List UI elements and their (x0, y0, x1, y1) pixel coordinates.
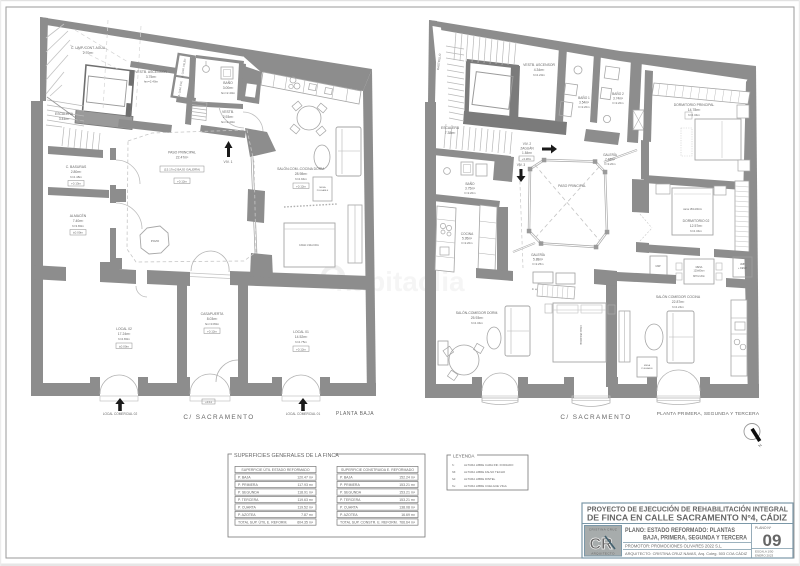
svg-text:h=2.34m: h=2.34m (471, 321, 483, 325)
svg-text:12.57m²: 12.57m² (690, 224, 703, 228)
svg-text:h=2.24m: h=2.24m (672, 305, 684, 309)
svg-text:(15.17m2 BAJO GALERÍA): (15.17m2 BAJO GALERÍA) (164, 168, 200, 172)
svg-text:153.21 m²: 153.21 m² (399, 498, 416, 502)
svg-text:5.88m²: 5.88m² (533, 258, 543, 262)
svg-text:+0.12m: +0.12m (177, 180, 188, 184)
svg-text:h=2.20m: h=2.20m (613, 101, 625, 105)
svg-text:22.47m²: 22.47m² (176, 156, 189, 160)
svg-text:VIV. 1: VIV. 1 (224, 160, 233, 164)
svg-text:BAÑO 1: BAÑO 1 (578, 95, 590, 100)
svg-text:1.84m²: 1.84m² (522, 151, 532, 155)
svg-text:±0.00m: ±0.00m (119, 345, 129, 349)
svg-text:118.91 m²: 118.91 m² (298, 490, 314, 494)
svg-text:7.40m²: 7.40m² (73, 219, 84, 223)
svg-text:P. AZOTEA: P. AZOTEA (340, 513, 358, 517)
svg-text:cama 150x190cm: cama 150x190cm (683, 208, 702, 211)
svg-text:2.93m²: 2.93m² (223, 115, 234, 119)
svg-text:P. TERCERA: P. TERCERA (340, 498, 361, 502)
svg-text:MH=2.20m: MH=2.20m (693, 275, 705, 278)
svg-text:h=3.20m: h=3.20m (605, 162, 617, 166)
svg-text:ZAGUÁN: ZAGUÁN (520, 147, 534, 151)
svg-text:P. BAJA: P. BAJA (238, 475, 251, 479)
svg-text:P. CUARTA: P. CUARTA (238, 505, 257, 509)
svg-text:ARQUITECTO: CRISTINA CRUZ NAVA: ARQUITECTO: CRISTINA CRUZ NAVAS, Arq. Co… (625, 551, 748, 556)
svg-text:h=2.94m: h=2.94m (295, 177, 307, 181)
svg-text:±0.00m: ±0.00m (73, 231, 83, 235)
svg-text:P. AZOTEA: P. AZOTEA (238, 513, 256, 517)
svg-text:7.18m²: 7.18m² (605, 158, 615, 162)
svg-text:BAJA, PRIMERA, SEGUNDA Y TERCE: BAJA, PRIMERA, SEGUNDA Y TERCERA (643, 536, 748, 542)
svg-text:hm=3.80m: hm=3.80m (205, 322, 220, 326)
svg-text:17.24m²: 17.24m² (118, 332, 131, 336)
svg-text:3.75m²: 3.75m² (465, 187, 475, 191)
svg-text:P. SEGUNDA: P. SEGUNDA (340, 490, 362, 494)
svg-text:P. CUARTA: P. CUARTA (340, 505, 359, 509)
svg-text:+0.11: +0.11 (205, 400, 212, 404)
svg-text:120.47 m²: 120.47 m² (297, 475, 314, 479)
svg-text:h=2.20m: h=2.20m (533, 73, 545, 77)
svg-text:TOTAL SUP. ÚTIL E. REFORM.: TOTAL SUP. ÚTIL E. REFORM. (238, 520, 287, 524)
svg-text:PLANO: ESTADO REFORMADO: PLAN: PLANO: ESTADO REFORMADO: PLANTAS (625, 528, 735, 534)
svg-text:14.52m²: 14.52m² (295, 335, 308, 339)
svg-text:P. TERCERA: P. TERCERA (238, 498, 259, 502)
svg-text:GALERÍA: GALERÍA (531, 253, 546, 257)
svg-text:LOCAL 02: LOCAL 02 (116, 327, 132, 331)
svg-text:138.08 m²: 138.08 m² (399, 505, 416, 509)
svg-text:28.98m²: 28.98m² (295, 172, 308, 176)
svg-text:+0.12m: +0.12m (296, 348, 307, 352)
svg-text:2.70m²: 2.70m² (83, 51, 94, 55)
svg-text:CAMA 1.90x2.00m: CAMA 1.90x2.00m (299, 244, 319, 247)
svg-text:14.78m²: 14.78m² (688, 108, 701, 112)
svg-text:h=2.75m: h=2.75m (295, 340, 307, 344)
svg-text:8.03m²: 8.03m² (207, 317, 218, 321)
svg-text:h=2.20m: h=2.20m (462, 241, 474, 245)
svg-text:3.75m²: 3.75m² (146, 75, 157, 79)
svg-text:LOCAL 01: LOCAL 01 (293, 330, 309, 334)
svg-text:hm=2.40m: hm=2.40m (144, 80, 159, 84)
svg-text:ALMACÉN: ALMACÉN (70, 213, 87, 218)
svg-text:4.34m²: 4.34m² (534, 68, 545, 72)
svg-text:22.87m²: 22.87m² (672, 300, 685, 304)
svg-text:ALTURA LIBRE CUELGUE VIGA: ALTURA LIBRE CUELGUE VIGA (464, 484, 507, 488)
svg-text:+ DESP.: + DESP. (738, 267, 747, 270)
svg-text:ALTURA LIBRE FALSO TECHO: ALTURA LIBRE FALSO TECHO (464, 470, 506, 474)
svg-text:16.69 m²: 16.69 m² (401, 513, 416, 517)
svg-text:09: 09 (763, 531, 782, 550)
svg-text:153.21 m²: 153.21 m² (399, 490, 416, 494)
svg-text:ARQUITECTO: ARQUITECTO (591, 552, 615, 556)
svg-text:hm=2.40m: hm=2.40m (221, 91, 236, 95)
svg-text:VESTB.: VESTB. (222, 110, 234, 114)
svg-text:h=2.34m: h=2.34m (690, 229, 702, 233)
svg-text:3.00m²: 3.00m² (223, 86, 234, 90)
svg-text:UMP: UMP (740, 263, 746, 266)
svg-text:MESA: MESA (319, 186, 326, 189)
svg-text:UMP: UMP (655, 265, 661, 268)
svg-text:SUPERFICIE CONSTRUIDA E. REFOR: SUPERFICIE CONSTRUIDA E. REFORMADO (341, 468, 414, 472)
svg-text:P. PRIMERA: P. PRIMERA (340, 483, 360, 487)
svg-text:SALÓN-COM.-COCINA DORM.: SALÓN-COM.-COCINA DORM. (277, 166, 325, 171)
svg-text:ALTURA LIBRE CARA INF. FORJADO: ALTURA LIBRE CARA INF. FORJADO (464, 463, 514, 467)
svg-text:PLEGABLE: PLEGABLE (641, 367, 653, 370)
svg-text:ESCALERA: ESCALERA (441, 126, 460, 130)
svg-text:DORMITORIO PRINCIPAL: DORMITORIO PRINCIPAL (674, 103, 715, 107)
svg-text:hft:: hft: (452, 470, 456, 474)
svg-text:h=2.34m: h=2.34m (688, 113, 700, 117)
svg-text:VESTB. ASCENSOR: VESTB. ASCENSOR (523, 63, 555, 67)
svg-text:TOTAL SUP. CONSTR. E. REFORM.: TOTAL SUP. CONSTR. E. REFORM. (340, 520, 398, 524)
svg-text:DORMITORIO 02: DORMITORIO 02 (683, 219, 710, 223)
svg-text:SALÓN COMEDOR COCINA: SALÓN COMEDOR COCINA (656, 294, 701, 299)
svg-text:P. SEGUNDA: P. SEGUNDA (238, 490, 260, 494)
svg-text:PROYECTO DE EJECUCIÓN DE REHAB: PROYECTO DE EJECUCIÓN DE REHABILITACIÓN … (587, 505, 788, 514)
svg-text:P. BAJA: P. BAJA (340, 475, 353, 479)
svg-text:h:: h: (452, 463, 455, 467)
svg-text:GALERÍA: GALERÍA (603, 153, 618, 157)
svg-text:117.93 m²: 117.93 m² (298, 483, 314, 487)
svg-text:POZO: POZO (151, 239, 160, 243)
svg-text:CASAPUERTA: CASAPUERTA (201, 312, 224, 316)
svg-text:hm=2.40m: hm=2.40m (221, 120, 236, 124)
svg-text:LOCAL COMERCIAL 02: LOCAL COMERCIAL 02 (103, 412, 138, 416)
svg-text:766.64 m²: 766.64 m² (399, 520, 416, 524)
svg-text:5.95m²: 5.95m² (462, 237, 472, 241)
svg-text:+0.12m: +0.12m (207, 330, 218, 334)
svg-text:119.63 m²: 119.63 m² (298, 498, 314, 502)
svg-text:VIV. 3: VIV. 3 (517, 163, 526, 167)
svg-text:25.93m²: 25.93m² (471, 316, 484, 320)
svg-text:+0.13m: +0.13m (71, 182, 82, 186)
svg-text:7.38m²: 7.38m² (445, 131, 456, 135)
svg-text:2.80m²: 2.80m² (71, 170, 82, 174)
svg-text:3.54m²: 3.54m² (579, 101, 589, 105)
svg-text:CRISTINA CRUZ: CRISTINA CRUZ (589, 528, 617, 532)
svg-text:ALTURA LIBRE DINTEL: ALTURA LIBRE DINTEL (464, 477, 496, 481)
svg-text:DE FINCA EN CALLE SACRAMENTO N: DE FINCA EN CALLE SACRAMENTO Nº4, CÁDIZ (587, 514, 787, 523)
svg-text:P. PRIMERA: P. PRIMERA (238, 483, 258, 487)
svg-text:BAÑO: BAÑO (465, 181, 475, 186)
svg-text:VESTB. ASCENSOR: VESTB. ASCENSOR (135, 70, 167, 74)
svg-text:PASO PRINCIPAL: PASO PRINCIPAL (558, 184, 586, 188)
svg-text:604.35 m²: 604.35 m² (297, 520, 314, 524)
svg-text:LOCAL COMERCIAL 01: LOCAL COMERCIAL 01 (286, 412, 321, 416)
svg-text:PROMOTOR: PROMOCIONES OLIVARES: PROMOTOR: PROMOCIONES OLIVARES 2022 S.L. (625, 544, 722, 549)
svg-text:COCINA: COCINA (461, 232, 474, 236)
svg-text:152.24 m²: 152.24 m² (399, 475, 416, 479)
svg-text:153.21 m²: 153.21 m² (399, 483, 416, 487)
svg-text:PLANO Nº: PLANO Nº (755, 526, 772, 530)
svg-text:3.44m²: 3.44m² (59, 117, 70, 121)
svg-text:PLANTA BAJA: PLANTA BAJA (336, 411, 374, 417)
svg-text:hd:: hd: (452, 477, 456, 481)
svg-text:ENERO 2023: ENERO 2023 (755, 554, 774, 558)
svg-text:h=2.20m: h=2.20m (579, 105, 591, 109)
svg-text:+3.28m: +3.28m (522, 157, 532, 161)
svg-text:BAÑO: BAÑO (223, 80, 233, 85)
svg-text:h=3.80m: h=3.80m (72, 224, 84, 228)
svg-text:C/ SACRAMENTO: C/ SACRAMENTO (183, 414, 254, 421)
svg-text:MESA: MESA (644, 364, 651, 367)
svg-text:119.52 m²: 119.52 m² (298, 505, 314, 509)
svg-text:BAÑO 2: BAÑO 2 (612, 91, 624, 96)
svg-text:SUPERFICIES GENERALES DE LA FI: SUPERFICIES GENERALES DE LA FINCA (234, 453, 339, 459)
svg-text:CAMA 150x190cm: CAMA 150x190cm (579, 325, 582, 345)
svg-text:hv:: hv: (452, 484, 456, 488)
svg-text:C/ SACRAMENTO: C/ SACRAMENTO (560, 414, 631, 421)
svg-text:h=2.20m: h=2.20m (465, 191, 477, 195)
svg-text:SUPERFICIE ÚTIL ESTADO REFORMA: SUPERFICIE ÚTIL ESTADO REFORMADO (241, 468, 310, 472)
svg-text:SALÓN-COMEDOR DORM.: SALÓN-COMEDOR DORM. (456, 310, 499, 315)
svg-text:PASO PRINCIPAL: PASO PRINCIPAL (168, 151, 196, 155)
svg-text:LEYENDA: LEYENDA (453, 454, 475, 459)
svg-text:ESCALERA: ESCALERA (55, 112, 74, 116)
svg-text:PLEGABLE: PLEGABLE (317, 189, 329, 192)
svg-text:h=2.25m: h=2.25m (533, 262, 545, 266)
svg-text:7.87 m²: 7.87 m² (301, 513, 314, 517)
svg-text:h=2.80m: h=2.80m (118, 337, 130, 341)
svg-text:PLANTA PRIMERA, SEGUNDA Y TERC: PLANTA PRIMERA, SEGUNDA Y TERCERA (657, 411, 760, 417)
svg-text:+0.12m: +0.12m (296, 185, 307, 189)
svg-text:CR: CR (589, 536, 613, 553)
svg-text:120x80cm: 120x80cm (693, 270, 704, 273)
svg-text:C. BASURAS: C. BASURAS (66, 165, 87, 169)
svg-text:h=2.48m: h=2.48m (70, 175, 82, 179)
svg-text:3.74m²: 3.74m² (613, 97, 623, 101)
svg-text:VIV. 2: VIV. 2 (523, 142, 532, 146)
svg-text:C. LIMP./CONT. AGUA: C. LIMP./CONT. AGUA (71, 46, 106, 50)
